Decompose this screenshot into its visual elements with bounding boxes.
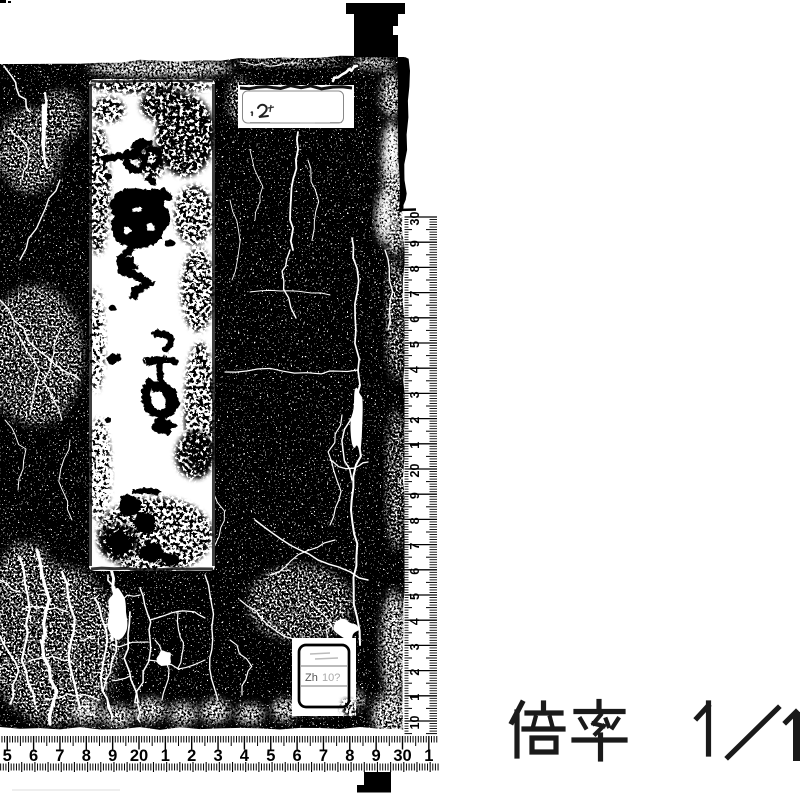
svg-text:7: 7 — [408, 291, 422, 298]
svg-text:5: 5 — [3, 747, 12, 765]
svg-text:7: 7 — [55, 747, 64, 765]
svg-text:3: 3 — [408, 391, 422, 398]
svg-text:8: 8 — [345, 747, 354, 765]
svg-text:5: 5 — [408, 593, 422, 600]
svg-text:8: 8 — [408, 265, 422, 272]
svg-text:3: 3 — [214, 747, 223, 765]
svg-text:6: 6 — [29, 747, 38, 765]
svg-text:9: 9 — [408, 492, 422, 499]
svg-text:3: 3 — [408, 643, 422, 650]
svg-text:30: 30 — [393, 747, 411, 765]
svg-text:20: 20 — [130, 747, 148, 765]
svg-text:5: 5 — [266, 747, 275, 765]
svg-text:1: 1 — [161, 747, 170, 765]
svg-text:1: 1 — [408, 442, 422, 449]
svg-text:1: 1 — [408, 694, 422, 701]
svg-text:6: 6 — [408, 568, 422, 575]
svg-text:10: 10 — [408, 716, 422, 730]
svg-text:5: 5 — [408, 341, 422, 348]
svg-text:9: 9 — [108, 747, 117, 765]
svg-text:30: 30 — [408, 212, 422, 226]
svg-text:2: 2 — [408, 417, 422, 424]
svg-text:Zh: Zh — [305, 672, 318, 684]
svg-text:7: 7 — [408, 543, 422, 550]
svg-text:4: 4 — [408, 618, 422, 625]
svg-text:8: 8 — [82, 747, 91, 765]
svg-text:10?: 10? — [322, 672, 340, 684]
svg-text:6: 6 — [408, 316, 422, 323]
svg-text:4: 4 — [240, 747, 250, 765]
svg-text:8: 8 — [408, 517, 422, 524]
svg-text:6: 6 — [293, 747, 302, 765]
svg-text:20: 20 — [408, 464, 422, 478]
svg-text:1: 1 — [424, 747, 433, 765]
svg-text:2: 2 — [408, 669, 422, 676]
svg-text:7: 7 — [319, 747, 328, 765]
svg-text:9: 9 — [408, 240, 422, 247]
svg-text:9: 9 — [372, 747, 381, 765]
svg-text:4: 4 — [408, 366, 422, 373]
svg-text:2: 2 — [187, 747, 196, 765]
